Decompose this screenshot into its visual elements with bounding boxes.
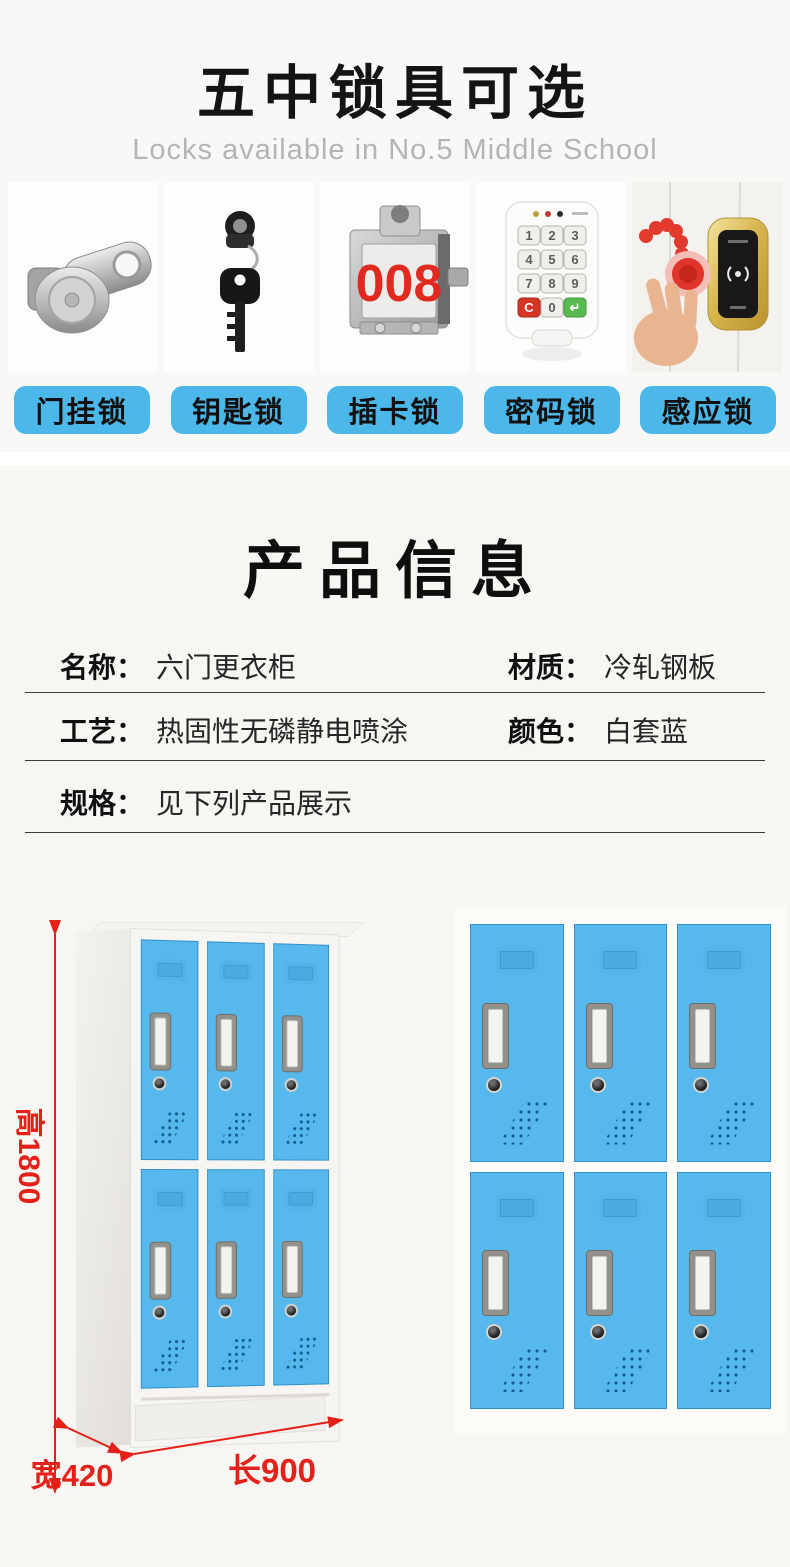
card-label-slot-icon (703, 947, 745, 973)
dimension-width-label: 宽420 (20, 1450, 124, 1495)
info-value-process: 热固性无磷静电喷涂 (156, 710, 408, 750)
tab-induction-lock[interactable]: 感应锁 (640, 386, 776, 434)
key-4: 4 (525, 252, 533, 267)
info-row-material: 材质： 冷轧钢板 (508, 646, 716, 686)
door-handle (689, 1003, 716, 1069)
photo-card-lock: 008 (320, 182, 470, 372)
key-6: 6 (571, 252, 578, 267)
keyhole-icon (592, 1079, 604, 1091)
dimension-arrows (0, 900, 420, 1520)
key-1: 1 (525, 228, 532, 243)
tab-password-lock[interactable]: 密码锁 (484, 386, 620, 434)
card-label-slot-icon (599, 947, 641, 973)
card-label-slot-icon (703, 1195, 745, 1221)
door-handle-plate (695, 1256, 710, 1310)
key-2: 2 (548, 228, 555, 243)
key-icon (164, 182, 314, 372)
info-row-name: 名称： 六门更衣柜 (60, 646, 296, 686)
dimension-length-label: 长900 (212, 1444, 332, 1492)
card-lock-icon: 008 (320, 182, 470, 372)
door-handle (586, 1250, 613, 1316)
photo-induction-lock (632, 182, 782, 372)
photo-hanging-lock (8, 182, 158, 372)
door-handle-plate (488, 1009, 503, 1063)
door-handle (586, 1003, 613, 1069)
keyhole-icon (695, 1326, 707, 1338)
locker-door (677, 1172, 771, 1410)
info-label-name: 名称： (60, 646, 144, 686)
keyhole-icon (488, 1326, 500, 1338)
tab-key-lock[interactable]: 钥匙锁 (171, 386, 307, 434)
key-3: 3 (571, 228, 578, 243)
info-label-spec: 规格： (60, 782, 144, 822)
product-info-title: 产品信息 (0, 520, 790, 610)
vent-holes-icon (602, 1099, 654, 1145)
door-handle (482, 1250, 509, 1316)
door-handle-plate (695, 1009, 710, 1063)
door-handle (482, 1003, 509, 1069)
page-title: 五中锁具可选 (0, 46, 790, 130)
info-value-name: 六门更衣柜 (156, 646, 296, 686)
door-grid (470, 924, 771, 1409)
rfid-lock-icon (632, 182, 782, 372)
photo-key-lock (164, 182, 314, 372)
dimension-height-label: 高1800 (10, 1094, 54, 1218)
key-7: 7 (525, 276, 532, 291)
locker-door (677, 924, 771, 1162)
lock-type-buttons: 门挂锁 钥匙锁 插卡锁 密码锁 感应锁 (14, 386, 776, 434)
info-row-color: 颜色： 白套蓝 (508, 710, 688, 750)
key-clear: C (524, 300, 534, 315)
locker-door (470, 924, 564, 1162)
locker-cabinet-front (455, 907, 786, 1435)
vent-holes-icon (602, 1346, 654, 1392)
info-value-color: 白套蓝 (604, 710, 688, 750)
info-label-material: 材质： (508, 646, 592, 686)
door-handle-plate (592, 1256, 607, 1310)
tab-card-lock[interactable]: 插卡锁 (327, 386, 463, 434)
locker-door (574, 1172, 668, 1410)
key-5: 5 (548, 252, 555, 267)
key-0: 0 (548, 300, 555, 315)
photo-password-lock: 1 2 3 4 5 6 7 8 9 C (476, 182, 626, 372)
keyhole-icon (592, 1326, 604, 1338)
divider (25, 692, 765, 693)
locker-door (470, 1172, 564, 1410)
vent-holes-icon (499, 1346, 551, 1392)
lock-photos-row: 008 1 2 3 (8, 182, 782, 372)
divider (25, 760, 765, 761)
key-8: 8 (548, 276, 555, 291)
info-row-spec: 规格： 见下列产品展示 (60, 782, 352, 822)
lock-number-display: 008 (356, 255, 443, 313)
locks-section: 五中锁具可选 Locks available in No.5 Middle Sc… (0, 0, 790, 452)
vent-holes-icon (499, 1099, 551, 1145)
card-label-slot-icon (496, 947, 538, 973)
info-value-spec: 见下列产品展示 (156, 782, 352, 822)
door-handle-plate (488, 1256, 503, 1310)
keypad-icon: 1 2 3 4 5 6 7 8 9 C (476, 182, 626, 372)
info-label-color: 颜色： (508, 710, 592, 750)
door-handle-plate (592, 1009, 607, 1063)
key-enter: ↵ (570, 300, 581, 315)
page-subtitle: Locks available in No.5 Middle School (0, 134, 790, 167)
divider (25, 832, 765, 833)
tab-hanging-lock[interactable]: 门挂锁 (14, 386, 150, 434)
vent-holes-icon (706, 1099, 758, 1145)
info-value-material: 冷轧钢板 (604, 646, 716, 686)
door-handle (689, 1250, 716, 1316)
keyhole-icon (488, 1079, 500, 1091)
keyhole-icon (695, 1079, 707, 1091)
card-label-slot-icon (496, 1195, 538, 1221)
card-label-slot-icon (599, 1195, 641, 1221)
info-label-process: 工艺： (60, 710, 144, 750)
cam-lock-icon (8, 182, 158, 372)
locker-door (574, 924, 668, 1162)
key-9: 9 (571, 276, 578, 291)
info-row-process: 工艺： 热固性无磷静电喷涂 (60, 710, 408, 750)
vent-holes-icon (706, 1346, 758, 1392)
